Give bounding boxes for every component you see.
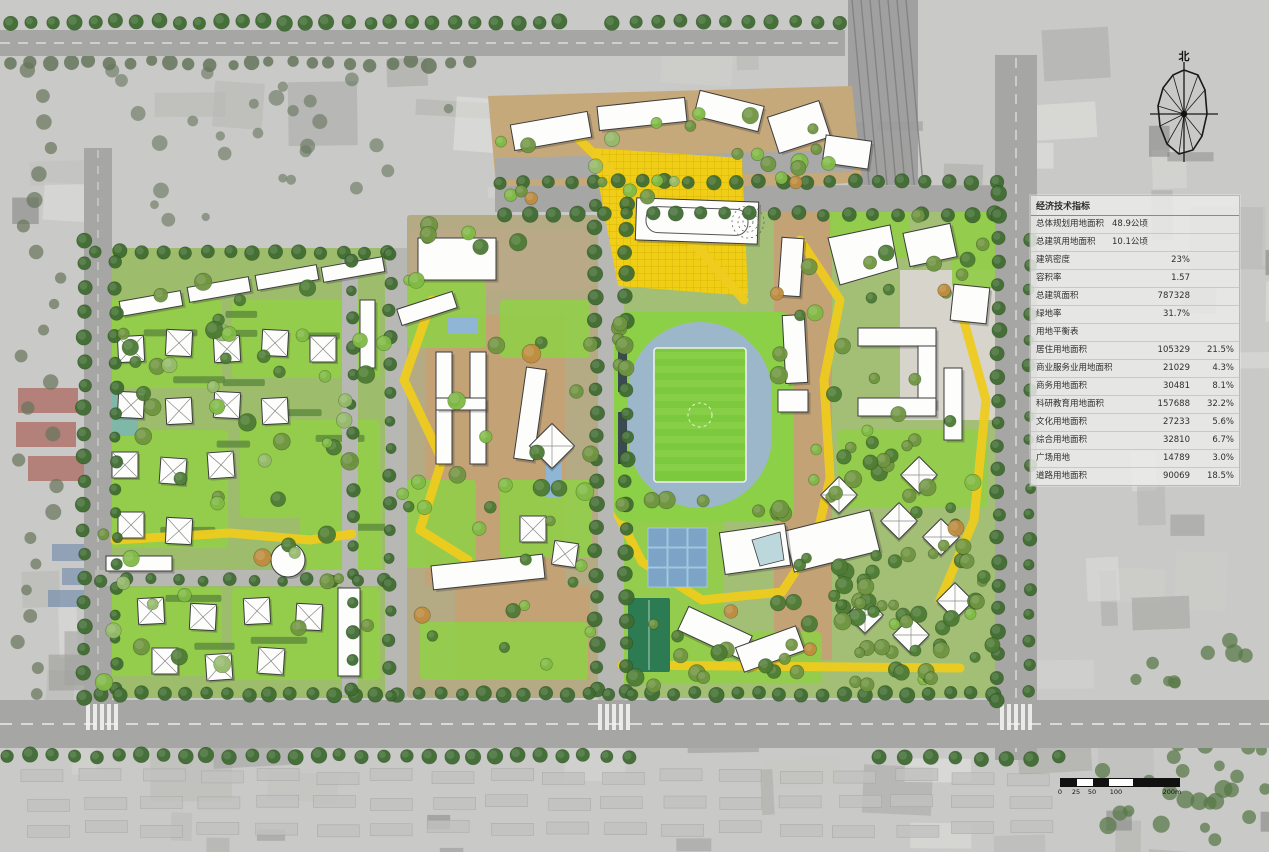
indicator-percent: 21.5% xyxy=(1190,346,1234,356)
indicator-value: 787328 xyxy=(1128,292,1190,302)
indicator-value: 14789 xyxy=(1128,454,1190,464)
indicator-row: 综合用地面积328106.7% xyxy=(1031,432,1239,450)
indicators-table: 经济技术指标 总体规划用地面积48.9公顷总建筑用地面积10.1公顷建筑密度23… xyxy=(1030,195,1240,486)
indicator-value: 30481 xyxy=(1128,382,1190,392)
indicator-value: 90069 xyxy=(1128,472,1190,482)
indicator-row: 文化用地面积272335.6% xyxy=(1031,414,1239,432)
master-plan-page: 北 经济技术指标 总体规划用地面积48.9公顷总建筑用地面积10.1公顷建筑密度… xyxy=(0,0,1269,852)
indicator-row: 总建筑用地面积10.1公顷 xyxy=(1031,234,1239,252)
indicator-row: 绿地率31.7% xyxy=(1031,306,1239,324)
indicator-row: 道路用地面积9006918.5% xyxy=(1031,468,1239,485)
indicator-row: 建筑密度23% xyxy=(1031,252,1239,270)
indicator-label: 绿地率 xyxy=(1036,310,1128,320)
scale-label: 0 xyxy=(1058,788,1062,796)
scale-bar-segments xyxy=(1060,778,1180,787)
compass-rose: 北 xyxy=(1146,48,1222,166)
indicator-row: 总体规划用地面积48.9公顷 xyxy=(1031,216,1239,234)
indicator-label: 综合用地面积 xyxy=(1036,436,1128,446)
indicator-row: 商业服务业用地面积210294.3% xyxy=(1031,360,1239,378)
indicator-label: 容积率 xyxy=(1036,274,1128,284)
indicator-value: 31.7% xyxy=(1128,310,1190,320)
indicator-label: 文化用地面积 xyxy=(1036,418,1128,428)
indicator-row: 科研教育用地面积15768832.2% xyxy=(1031,396,1239,414)
indicator-label: 居住用地面积 xyxy=(1036,346,1128,356)
scale-label: 100 xyxy=(1110,788,1122,796)
scale-label: 50 xyxy=(1088,788,1096,796)
indicator-percent: 8.1% xyxy=(1190,382,1234,392)
indicator-percent: 5.6% xyxy=(1190,418,1234,428)
indicator-percent: 4.3% xyxy=(1190,364,1234,374)
scale-bar-labels: 02550100200m xyxy=(1060,787,1178,798)
indicator-row: 居住用地面积10532921.5% xyxy=(1031,342,1239,360)
indicator-value: 157688 xyxy=(1128,400,1190,410)
indicator-value: 23% xyxy=(1128,256,1190,266)
indicator-label: 科研教育用地面积 xyxy=(1036,400,1128,410)
indicator-row: 商务用地面积304818.1% xyxy=(1031,378,1239,396)
indicator-label: 总建筑面积 xyxy=(1036,292,1128,302)
indicator-label: 商业服务业用地面积 xyxy=(1036,364,1128,374)
indicator-label: 商务用地面积 xyxy=(1036,382,1128,392)
indicator-label: 道路用地面积 xyxy=(1036,472,1128,482)
indicator-row: 用地平衡表 xyxy=(1031,324,1239,342)
indicator-value: 1.57 xyxy=(1128,274,1190,284)
scale-label: 25 xyxy=(1072,788,1080,796)
indicator-value: 32810 xyxy=(1128,436,1190,446)
indicator-value: 10.1公顷 xyxy=(1112,238,1190,248)
indicator-percent: 6.7% xyxy=(1190,436,1234,446)
indicator-label: 建筑密度 xyxy=(1036,256,1128,266)
compass-north-label: 北 xyxy=(1179,49,1190,63)
indicator-row: 容积率1.57 xyxy=(1031,270,1239,288)
indicator-percent: 3.0% xyxy=(1190,454,1234,464)
indicator-value: 48.9公顷 xyxy=(1112,220,1190,230)
indicators-table-title: 经济技术指标 xyxy=(1031,196,1239,216)
indicator-value: 105329 xyxy=(1128,346,1190,356)
indicator-percent: 18.5% xyxy=(1190,472,1234,482)
indicator-value: 27233 xyxy=(1128,418,1190,428)
compass-north-icon: 北 xyxy=(1146,48,1222,166)
scale-label: 200m xyxy=(1163,788,1182,796)
indicator-row: 广场用地147893.0% xyxy=(1031,450,1239,468)
indicator-label: 广场用地 xyxy=(1036,454,1128,464)
scale-bar: 02550100200m xyxy=(1060,778,1180,800)
indicator-value: 21029 xyxy=(1128,364,1190,374)
indicator-label: 总建筑用地面积 xyxy=(1036,238,1112,248)
indicator-label: 用地平衡表 xyxy=(1036,328,1128,338)
indicator-percent: 32.2% xyxy=(1190,400,1234,410)
indicator-row: 总建筑面积787328 xyxy=(1031,288,1239,306)
indicator-label: 总体规划用地面积 xyxy=(1036,220,1112,230)
